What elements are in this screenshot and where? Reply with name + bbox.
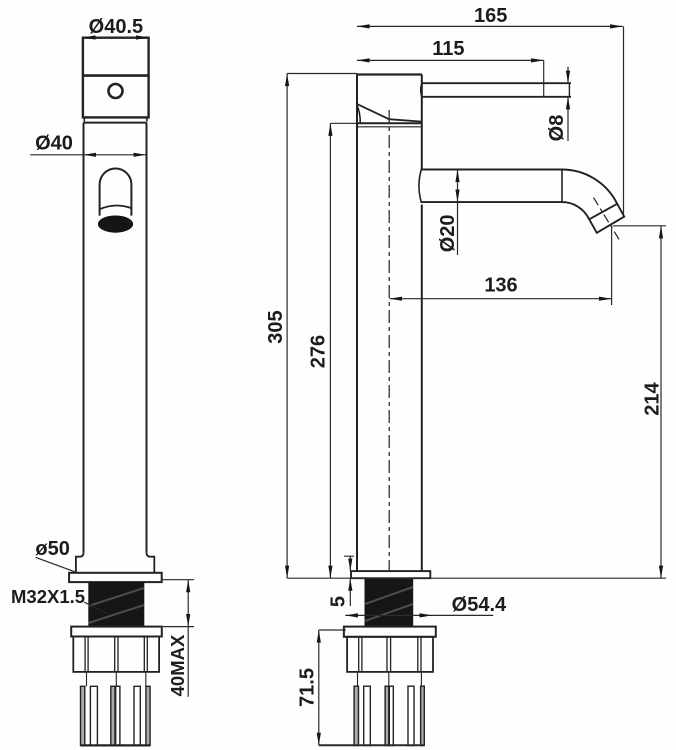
svg-text:40MAX: 40MAX — [167, 634, 188, 696]
svg-text:214: 214 — [642, 381, 664, 415]
svg-text:M32X1.5: M32X1.5 — [11, 586, 85, 607]
svg-text:5: 5 — [327, 596, 349, 607]
svg-text:Ø40: Ø40 — [35, 133, 73, 155]
svg-text:136: 136 — [484, 275, 517, 297]
svg-text:Ø20: Ø20 — [437, 214, 459, 252]
svg-text:71.5: 71.5 — [297, 668, 319, 707]
svg-text:165: 165 — [474, 5, 507, 27]
svg-text:Ø40.5: Ø40.5 — [89, 16, 143, 38]
svg-text:305: 305 — [265, 310, 287, 343]
svg-text:276: 276 — [308, 335, 330, 368]
svg-text:115: 115 — [432, 38, 464, 60]
svg-text:Ø8: Ø8 — [546, 115, 568, 142]
svg-text:ø50: ø50 — [35, 538, 69, 560]
svg-text:Ø54.4: Ø54.4 — [452, 594, 507, 616]
